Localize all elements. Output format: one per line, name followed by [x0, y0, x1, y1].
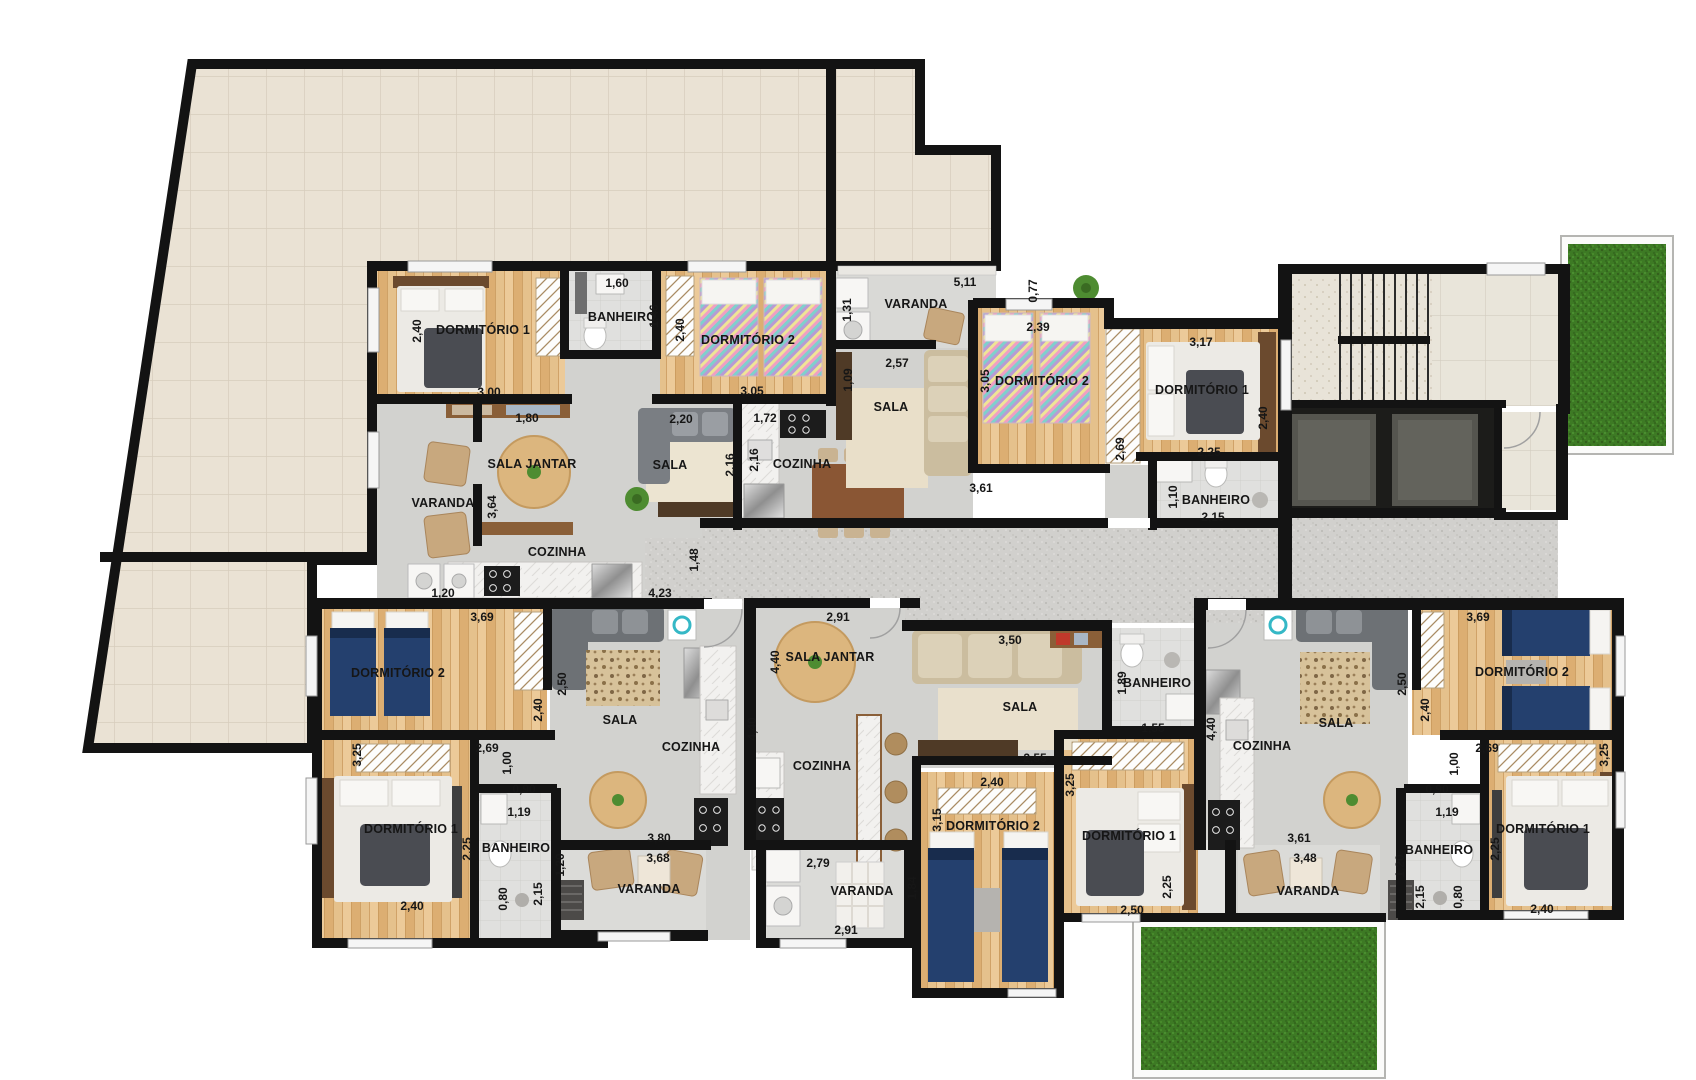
- floor-plan-drawing: [0, 0, 1696, 1080]
- lawn-top-right: [1561, 236, 1673, 454]
- staircase: [1288, 272, 1558, 406]
- lawn-bottom: [1133, 919, 1385, 1078]
- floor-plan-canvas: DORMITÓRIO 1BANHEIRODORMITÓRIO 2SALA JAN…: [0, 0, 1696, 1080]
- elevators: [1284, 406, 1502, 514]
- elevator-vestibule: [1502, 412, 1556, 510]
